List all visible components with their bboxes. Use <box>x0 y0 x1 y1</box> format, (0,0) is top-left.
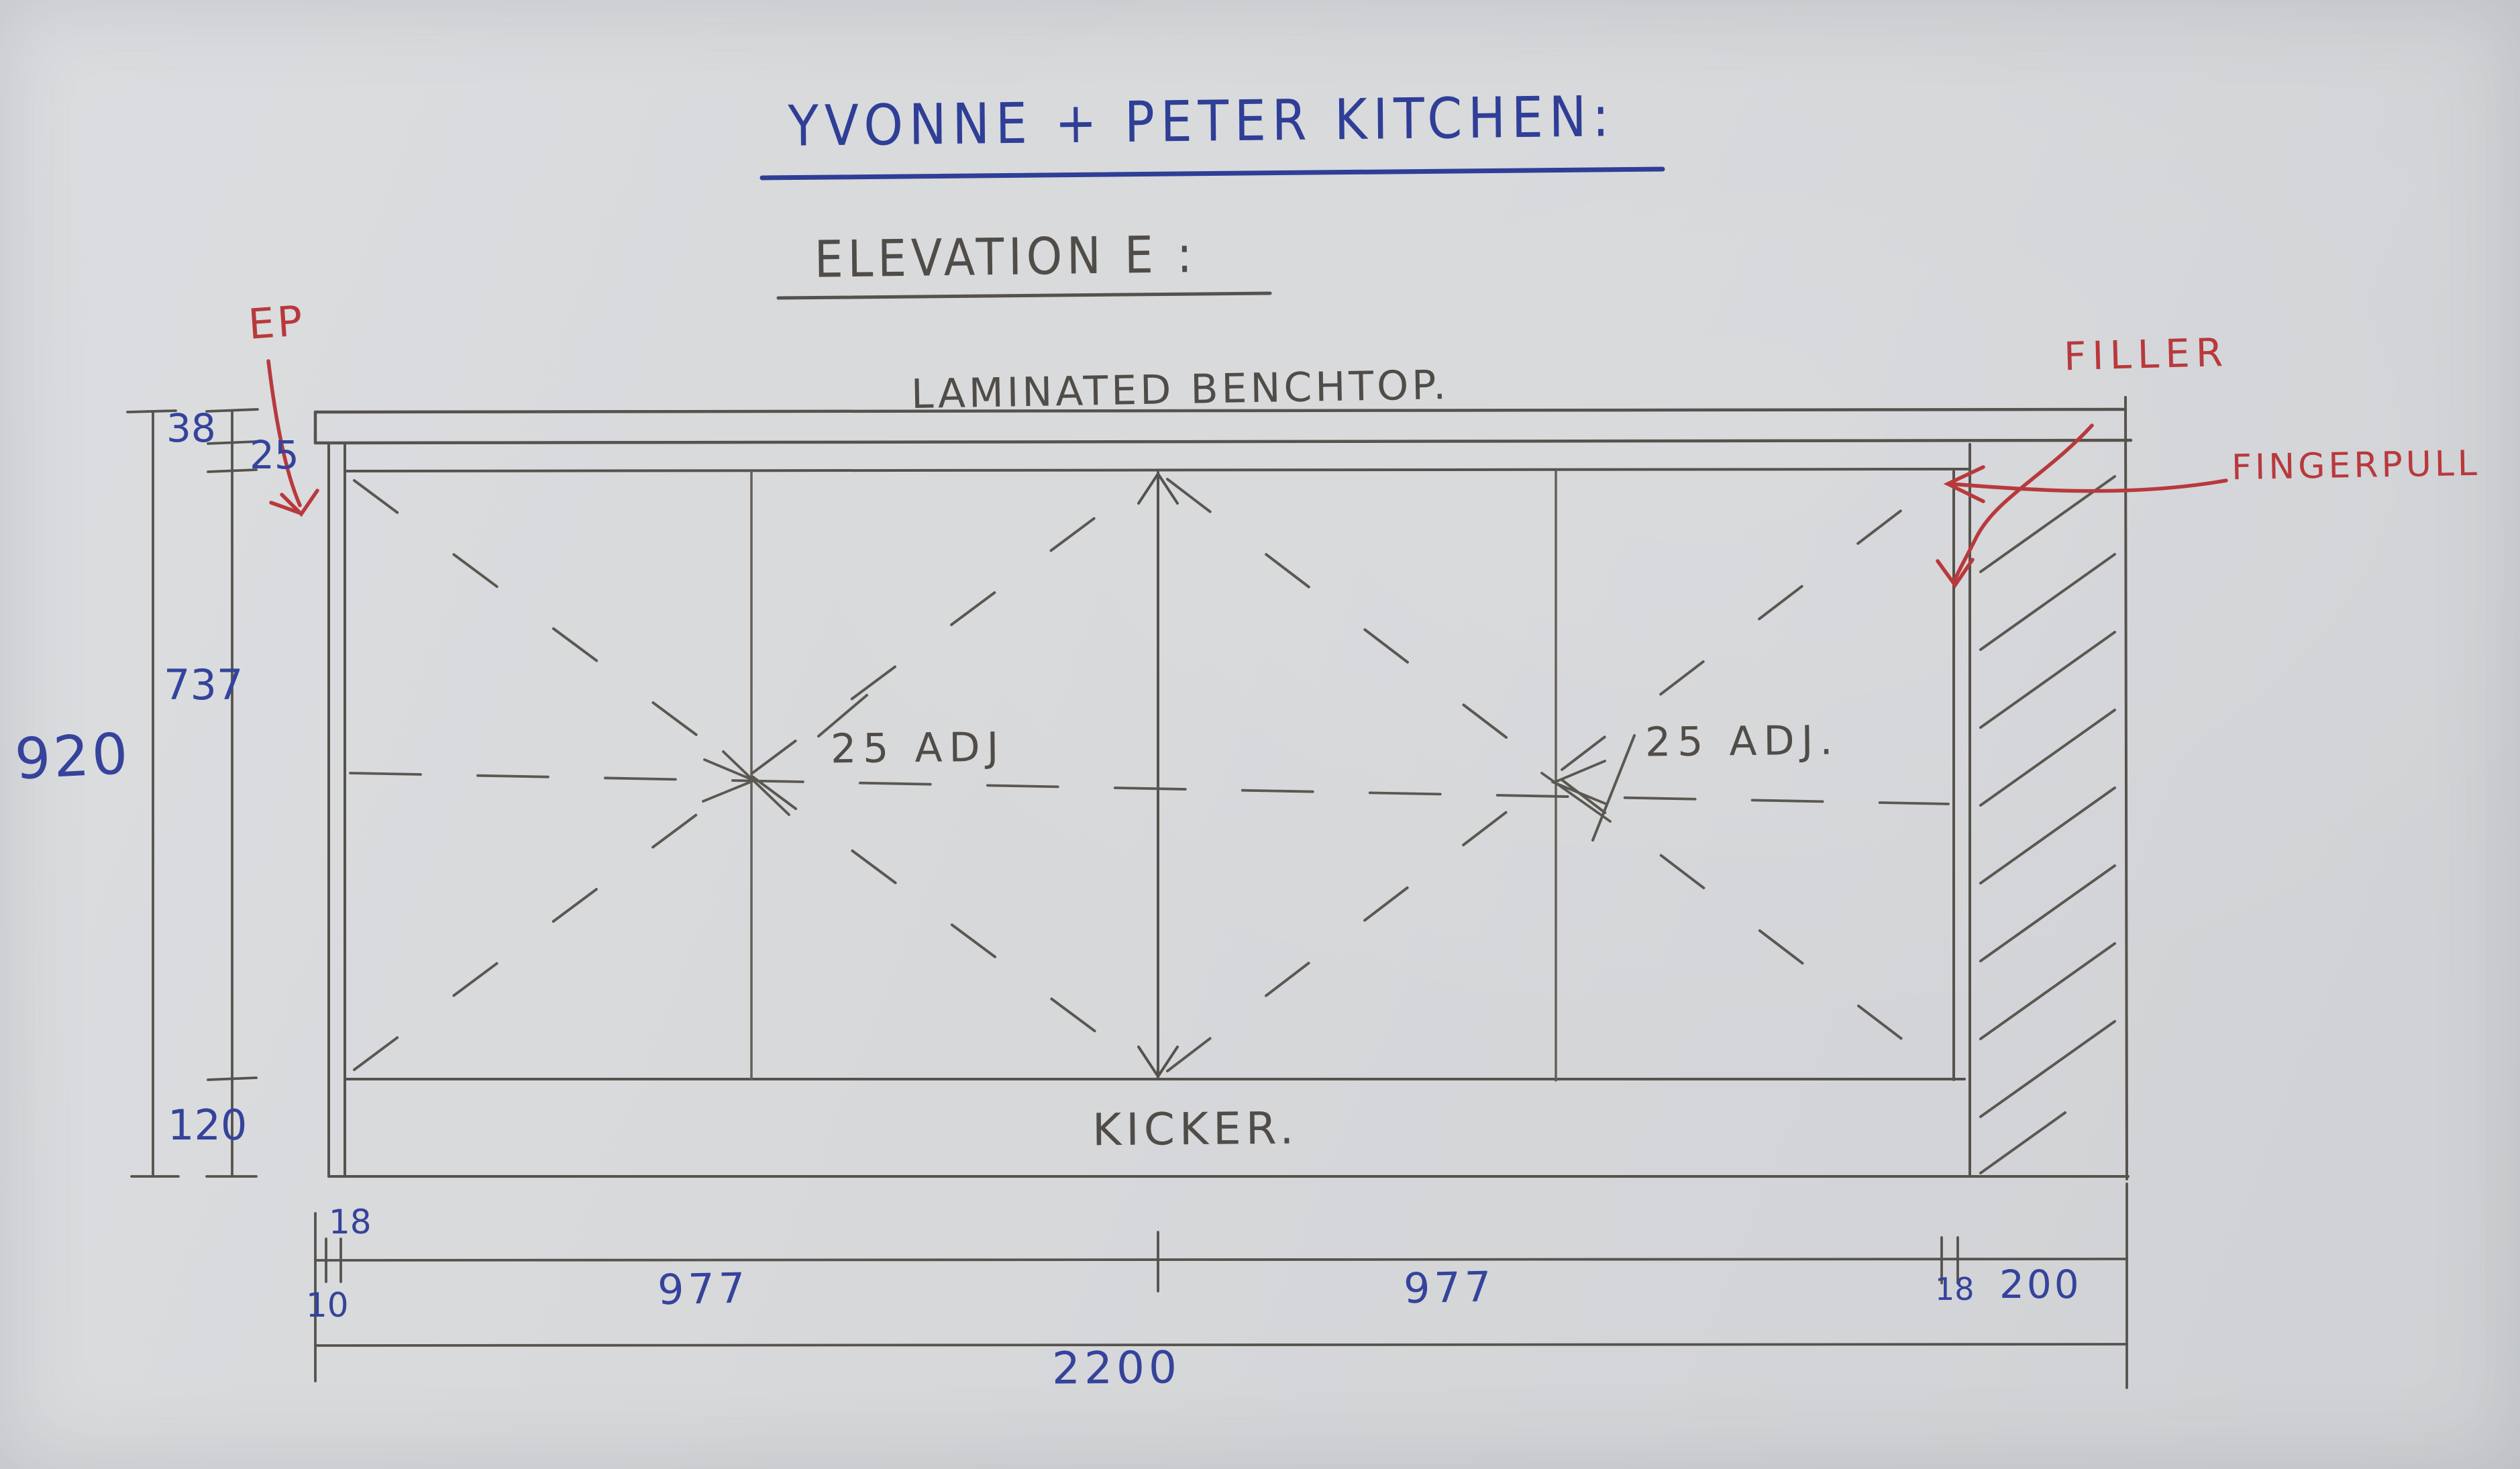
dim-overall-width: 2200 <box>1052 1341 1182 1394</box>
left-dimension-lines <box>127 409 258 1176</box>
dim-bay-left-width: 977 <box>657 1264 749 1315</box>
page-title: YVONNE + PETER KITCHEN: <box>788 83 1615 158</box>
cabinet-outline <box>329 444 2128 1176</box>
filler-leader-arrow <box>1938 425 2092 585</box>
benchtop-label: LAMINATED BENCHTOP. <box>910 362 1449 418</box>
elevation-linework <box>0 0 2520 1469</box>
dim-left-gap: 10 <box>306 1286 349 1325</box>
kicker-label: KICKER. <box>1092 1103 1299 1156</box>
dim-overall-height: 920 <box>13 721 132 793</box>
end-panel-label: EP <box>247 296 307 349</box>
dim-kicker-height: 120 <box>168 1101 247 1150</box>
filler-label: FILLER <box>2063 330 2229 379</box>
dim-filler-width: 200 <box>1999 1262 2082 1307</box>
bay-centerlines <box>751 471 1556 1080</box>
bottom-dimension-lines <box>315 1184 2127 1388</box>
filler-hatch <box>1981 476 2115 1173</box>
dim-benchtop-thickness: 38 <box>166 405 216 451</box>
hand-drawn-elevation-sheet: YVONNE + PETER KITCHEN: ELEVATION E : LA… <box>0 0 2520 1469</box>
adj-shelf-label-left: 25 ADJ <box>831 724 1006 773</box>
dim-bay-right-width: 977 <box>1403 1262 1495 1313</box>
dim-right-panel: 18 <box>1935 1271 1975 1307</box>
dim-left-panel: 18 <box>329 1203 372 1242</box>
subtitle-underline <box>778 293 1270 298</box>
adj-shelf-label-right: 25 ADJ. <box>1645 717 1840 766</box>
elevation-subtitle: ELEVATION E : <box>814 225 1197 289</box>
dim-fingerpull-gap: 25 <box>250 432 299 478</box>
benchtop-outline <box>315 409 2131 443</box>
dim-door-height: 737 <box>164 660 243 709</box>
fingerpull-label: FINGERPULL <box>2232 444 2481 488</box>
bay-divider <box>1139 472 1177 1078</box>
title-underline <box>762 169 1663 178</box>
wall-line <box>2125 397 2127 1179</box>
